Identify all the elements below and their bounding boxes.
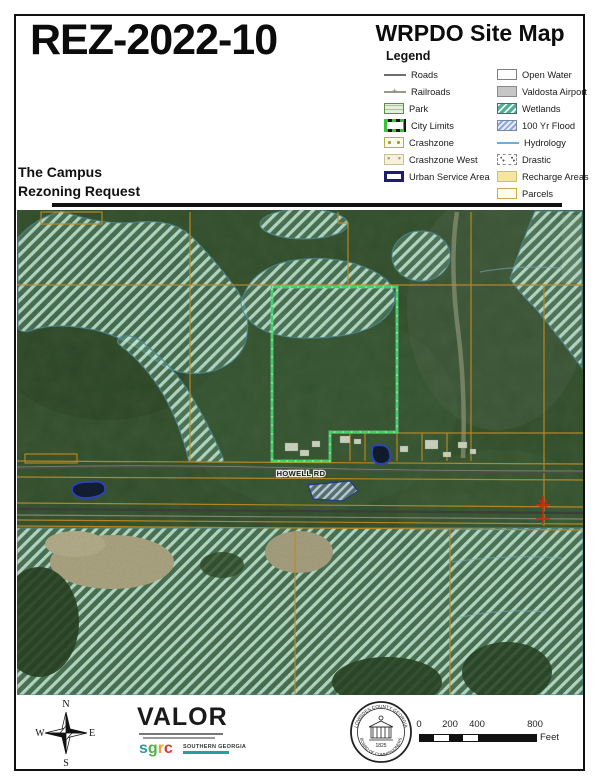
legend-row: Recharge Areas <box>497 168 589 185</box>
sgrc-org-name: SOUTHERN GEORGIA <box>183 744 246 750</box>
legend-row: 100 Yr Flood <box>497 117 589 134</box>
legend-row: Railroads <box>384 83 497 100</box>
legend-label: Urban Service Area <box>409 172 490 182</box>
legend-swatch-airport <box>497 86 517 97</box>
legend-row: City Limits <box>384 117 497 134</box>
legend-row: Roads <box>384 66 497 83</box>
legend-label: City Limits <box>411 121 454 131</box>
map-document-page: REZ-2022-10 WRPDO Site Map Legend RoadsR… <box>0 0 600 777</box>
satellite-noise-overlay <box>17 210 583 695</box>
scalebar <box>419 734 537 742</box>
legend-swatch-drastic <box>497 154 517 165</box>
legend-label: Hydrology <box>524 138 566 148</box>
legend-swatch-crashwest <box>384 154 404 165</box>
legend-swatch-recharge <box>497 171 517 182</box>
map-canvas: HOWELL RD <box>17 210 583 695</box>
legend-column-left: RoadsRailroadsParkCity LimitsCrashzoneCr… <box>384 66 497 202</box>
legend-swatch-hydro <box>497 142 519 144</box>
valor-tagline-line1 <box>139 733 223 735</box>
legend-row: Hydrology <box>497 134 589 151</box>
scalebar-unit: Feet <box>540 732 559 743</box>
map: HOWELL RD <box>17 210 583 695</box>
legend-swatch-usa <box>384 171 404 182</box>
legend-row: Drastic <box>497 151 589 168</box>
scalebar-tick-label: 0 <box>416 719 421 730</box>
scalebar-tick-label: 200 <box>442 719 458 730</box>
legend-label: Crashzone West <box>409 155 478 165</box>
legend-row: Crashzone West <box>384 151 497 168</box>
legend-column-right: Open WaterValdosta AirportWetlands100 Yr… <box>497 66 589 202</box>
legend-swatch-flood <box>497 120 517 131</box>
valor-tagline-line2 <box>143 737 215 739</box>
sgrc-logo: sgrc <box>139 741 173 757</box>
legend-swatch-water <box>497 69 517 80</box>
legend-label: Roads <box>411 70 438 80</box>
legend-row: Urban Service Area <box>384 168 497 185</box>
legend-columns: RoadsRailroadsParkCity LimitsCrashzoneCr… <box>384 66 589 202</box>
legend-row: Open Water <box>497 66 589 83</box>
header-rule <box>52 203 562 207</box>
legend-label: Valdosta Airport <box>522 87 587 97</box>
map-title: WRPDO Site Map <box>372 20 568 47</box>
legend-swatch-rail <box>384 91 406 93</box>
legend-swatch-wetlands <box>497 103 517 114</box>
scalebar-tick-label: 400 <box>469 719 485 730</box>
sgrc-org-subline <box>183 751 229 754</box>
compass-rose: N S W E <box>34 696 98 768</box>
legend-label: 100 Yr Flood <box>522 121 575 131</box>
sgrc-letter: c <box>164 741 173 757</box>
legend-row: Park <box>384 100 497 117</box>
compass-s-label: S <box>63 758 69 768</box>
scalebar-tick-label: 800 <box>527 719 543 730</box>
seal-year: 1825 <box>375 743 386 749</box>
legend-label: Parcels <box>522 189 553 199</box>
legend-label: Park <box>409 104 428 114</box>
scalebar-seg <box>449 735 463 741</box>
county-seal: LOWNDES COUNTY GEORGIA BOARD OF COMMISSI… <box>349 700 413 764</box>
scalebar-seg <box>420 735 434 741</box>
case-number-title: REZ-2022-10 <box>30 16 277 65</box>
legend: Legend RoadsRailroadsParkCity LimitsCras… <box>384 49 589 202</box>
legend-label: Crashzone <box>409 138 454 148</box>
sgrc-letter: g <box>148 741 158 757</box>
sgrc-letter: s <box>139 741 148 757</box>
legend-label: Recharge Areas <box>522 172 589 182</box>
legend-label: Wetlands <box>522 104 561 114</box>
scalebar-seg <box>434 735 449 741</box>
compass-n-label: N <box>62 699 69 710</box>
legend-label: Drastic <box>522 155 551 165</box>
legend-swatch-road <box>384 74 406 76</box>
legend-row: Valdosta Airport <box>497 83 589 100</box>
request-subtitle: The Campus Rezoning Request <box>18 163 140 201</box>
request-type: Rezoning Request <box>18 182 140 201</box>
legend-title: Legend <box>386 49 589 63</box>
scalebar-seg <box>478 735 536 741</box>
scalebar-labels: 0200400800 <box>0 719 600 731</box>
legend-swatch-parcels <box>497 188 517 199</box>
legend-swatch-citylimits <box>384 119 406 132</box>
legend-row: Crashzone <box>384 134 497 151</box>
legend-row: Parcels <box>497 185 589 202</box>
legend-row: Wetlands <box>497 100 589 117</box>
legend-swatch-park <box>384 103 404 114</box>
legend-label: Railroads <box>411 87 450 97</box>
scalebar-seg <box>463 735 478 741</box>
legend-swatch-crashzone <box>384 137 404 148</box>
request-name: The Campus <box>18 163 140 182</box>
legend-label: Open Water <box>522 70 572 80</box>
